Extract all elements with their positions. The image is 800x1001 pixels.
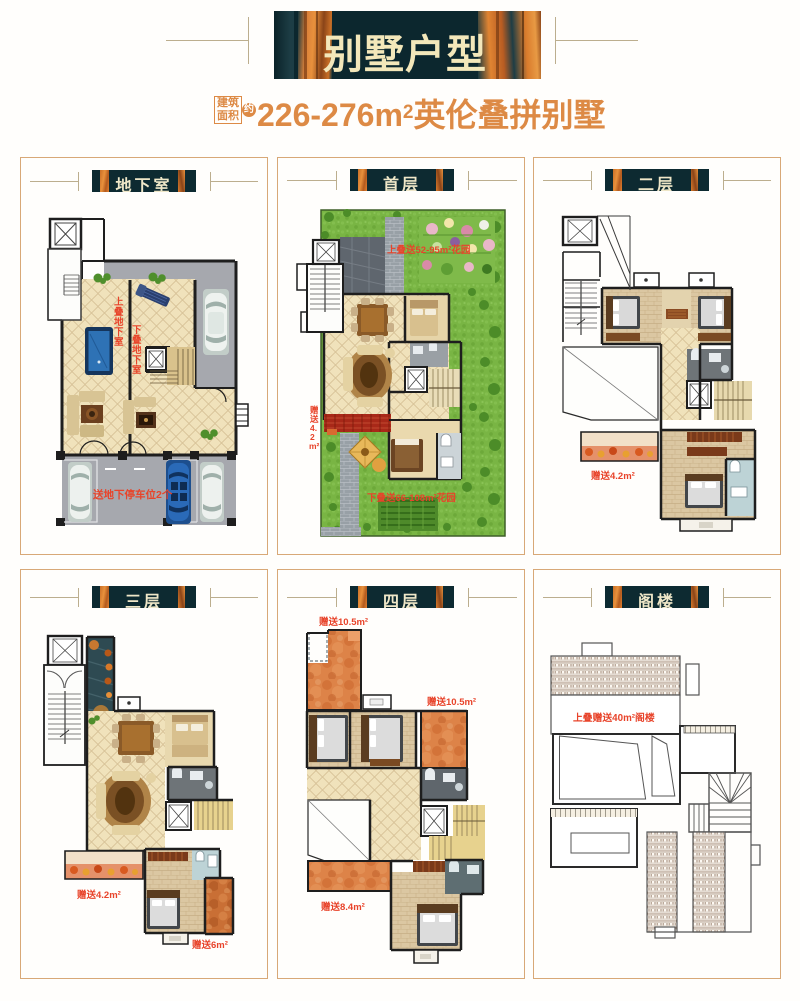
- svg-text:赠送4.2m²: 赠送4.2m²: [591, 470, 635, 482]
- svg-text:赠送4.2m²: 赠送4.2m²: [77, 889, 121, 901]
- svg-text:下叠送66-108m²花园: 下叠送66-108m²花园: [367, 492, 456, 504]
- svg-text:赠送6m²: 赠送6m²: [192, 939, 228, 951]
- svg-text:赠送8.4m²: 赠送8.4m²: [321, 901, 365, 913]
- svg-text:上叠赠送40m²阁楼: 上叠赠送40m²阁楼: [573, 711, 655, 724]
- svg-text:下叠地下室: 下叠地下室: [132, 325, 142, 376]
- svg-text:赠送4.2m²: 赠送4.2m²: [309, 405, 320, 451]
- svg-text:上叠送52-95m²花园: 上叠送52-95m²花园: [387, 244, 470, 256]
- svg-text:送地下停车位2个: 送地下停车位2个: [92, 488, 173, 501]
- svg-text:上叠地下室: 上叠地下室: [114, 296, 124, 348]
- svg-text:赠送10.5m²: 赠送10.5m²: [427, 696, 476, 708]
- svg-text:赠送10.5m²: 赠送10.5m²: [319, 616, 368, 628]
